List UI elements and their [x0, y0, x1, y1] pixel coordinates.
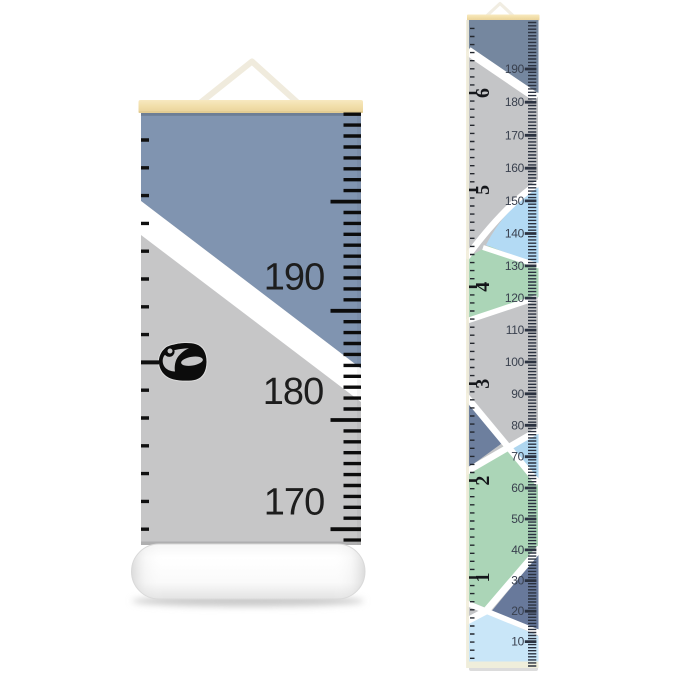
svg-text:110: 110 — [506, 323, 525, 337]
svg-text:120: 120 — [505, 291, 525, 305]
svg-text:180: 180 — [263, 371, 323, 413]
svg-text:170: 170 — [264, 482, 324, 524]
svg-text:190: 190 — [264, 257, 324, 299]
svg-text:60: 60 — [511, 481, 524, 495]
svg-text:150: 150 — [505, 194, 525, 208]
svg-text:170: 170 — [505, 128, 525, 142]
svg-text:2: 2 — [472, 476, 494, 486]
svg-text:10: 10 — [511, 635, 524, 649]
svg-text:130: 130 — [505, 259, 525, 273]
svg-text:50: 50 — [511, 512, 524, 526]
svg-text:1: 1 — [472, 573, 494, 583]
svg-text:160: 160 — [505, 161, 525, 175]
svg-text:40: 40 — [511, 543, 524, 557]
svg-text:80: 80 — [511, 418, 524, 432]
svg-text:140: 140 — [505, 227, 525, 241]
svg-text:4: 4 — [472, 282, 494, 292]
svg-text:20: 20 — [511, 604, 524, 618]
svg-text:5: 5 — [472, 185, 494, 195]
svg-text:3: 3 — [472, 379, 494, 389]
svg-text:100: 100 — [505, 355, 525, 369]
svg-text:90: 90 — [511, 387, 524, 401]
svg-text:6: 6 — [472, 88, 494, 98]
svg-text:180: 180 — [505, 95, 525, 109]
svg-text:30: 30 — [511, 574, 524, 588]
svg-text:190: 190 — [505, 62, 525, 76]
svg-text:70: 70 — [511, 450, 524, 464]
